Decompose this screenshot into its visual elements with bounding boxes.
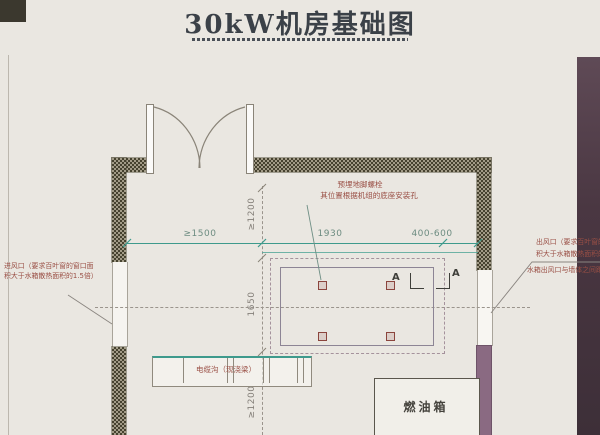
section-marker-a-left: A [392, 272, 400, 283]
drawing-title: 30kW机房基础图 [0, 4, 600, 41]
trench-divider [269, 358, 270, 383]
note-air-outlet-line1: 出风口（要求百叶窗的窗口面 [536, 237, 600, 247]
wall-right-upper-segment [477, 158, 491, 270]
section-cut-symbol-right [436, 273, 450, 289]
air-outlet-opening [477, 270, 493, 346]
foundation-drawing-canvas: 30kW机房基础图 ≥1500 1930 400-600 ≥1200 1650 … [0, 0, 600, 435]
door-leaf-left [146, 104, 154, 174]
door-swing-arc-right [199, 107, 245, 168]
dim-left-clearance: ≥1500 [170, 229, 230, 239]
wall-left-lower-segment [112, 347, 126, 435]
trench-divider [297, 358, 298, 383]
note-air-outlet-line3: 水箱出风口与墙体之间距 [527, 265, 600, 275]
fuel-tank-label: 燃油箱 [374, 398, 478, 415]
note-air-inlet-line1: 进风口（要求百叶窗的窗口面 [4, 262, 94, 270]
trench-divider [183, 358, 184, 383]
note-anchor-bolt-line1: 预埋地脚螺栓 [300, 180, 420, 191]
leader-air-inlet [68, 295, 112, 324]
dim-pad-length: 1930 [300, 229, 360, 239]
door-leaf-right [246, 104, 254, 174]
section-cut-symbol-left [410, 273, 424, 289]
title-underline [192, 38, 408, 41]
trench-divider [303, 358, 304, 383]
anchor-bolt [318, 332, 327, 341]
note-anchor-bolt-line2: 其位置根据机组的底座安装孔 [300, 191, 438, 202]
dim-right-gap: 400-600 [400, 229, 464, 239]
section-marker-a-right: A [452, 268, 460, 279]
wall-top-right-segment [253, 158, 491, 172]
secondary-dimension-line [262, 252, 478, 253]
cable-trench-label: 电缆沟（现浇梁） [186, 364, 266, 375]
horizontal-dimension-line [127, 243, 478, 244]
air-inlet-opening [112, 262, 128, 347]
door-swing-arc-left [154, 107, 200, 168]
note-air-outlet-line2: 积大于水箱散热面积的 [536, 249, 600, 259]
anchor-bolt [318, 281, 327, 290]
dim-top-clearance: ≥1200 [247, 184, 257, 244]
anchor-bolt [386, 332, 395, 341]
vertical-centerline [262, 186, 263, 435]
note-air-inlet: 进风口（要求百叶窗的窗口面 积大于水箱散热面积的1.5倍） [4, 261, 96, 281]
wall-left-upper-segment [112, 158, 126, 262]
dim-pad-width: 1650 [247, 274, 257, 334]
scan-left-edge-line [8, 55, 9, 435]
note-air-inlet-line2: 积大于水箱散热面积的1.5倍） [4, 272, 98, 280]
